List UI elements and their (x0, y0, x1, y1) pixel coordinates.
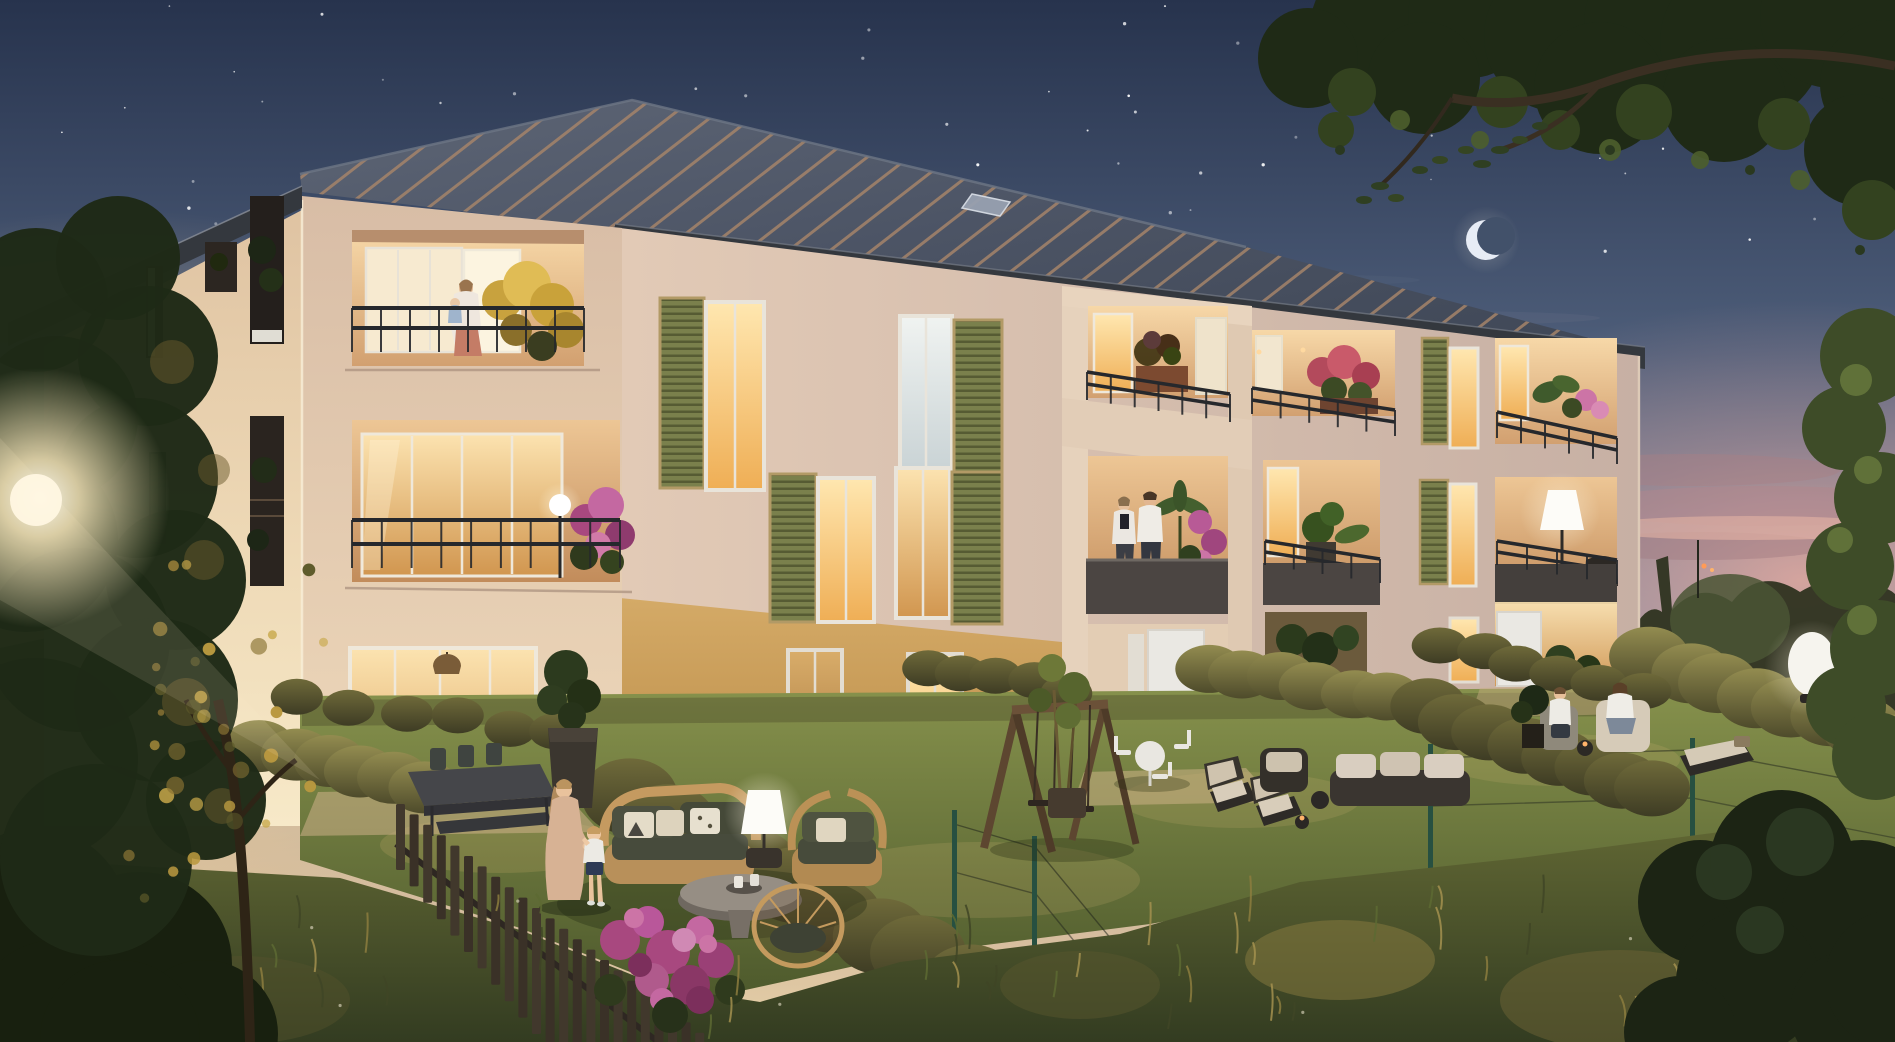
right-top-loggia (1495, 338, 1617, 450)
middle-loggia (1086, 456, 1228, 614)
moon (1452, 206, 1520, 274)
solid-parapet (1086, 560, 1228, 614)
glass-door-warm (1094, 314, 1132, 392)
scene (0, 0, 1895, 1042)
right-top-balcony (1252, 330, 1395, 422)
shutter-panel (770, 474, 816, 622)
moon-shadow (1477, 217, 1515, 255)
shutter-panel (660, 298, 704, 488)
right-mid-loggia-left (1263, 460, 1380, 605)
fence-post (952, 810, 957, 932)
render-canvas (0, 0, 1895, 1042)
wall-sconce (1301, 348, 1306, 353)
wall-sconce (1257, 350, 1262, 355)
glass-door-warm (1500, 346, 1528, 420)
left-middle-balcony (352, 420, 635, 582)
right-mid-loggia-lamp (1495, 472, 1618, 604)
curtain-window (1256, 336, 1282, 390)
shutter-panel (952, 472, 1002, 624)
glass-door-curtain (1196, 318, 1226, 394)
table-lamp (741, 790, 787, 834)
